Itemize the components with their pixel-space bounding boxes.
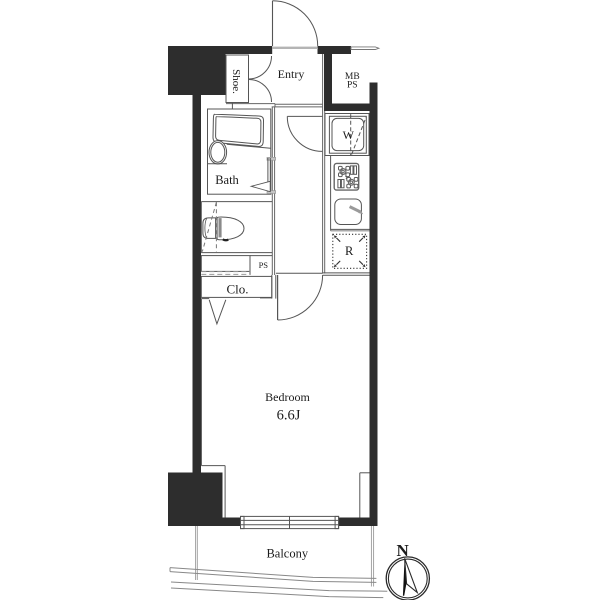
svg-text:Balcony: Balcony: [266, 547, 308, 561]
svg-text:Entry: Entry: [278, 67, 305, 81]
svg-text:Bath: Bath: [215, 173, 239, 187]
svg-text:Shoe.: Shoe.: [230, 69, 242, 94]
svg-text:R: R: [345, 244, 354, 258]
svg-text:Bedroom: Bedroom: [265, 390, 310, 404]
svg-text:Clo.: Clo.: [226, 282, 248, 297]
svg-text:PS: PS: [259, 260, 269, 270]
svg-text:PS: PS: [347, 81, 358, 91]
svg-text:6.6J: 6.6J: [277, 407, 301, 423]
svg-text:N: N: [397, 541, 410, 560]
svg-text:W: W: [343, 128, 355, 142]
